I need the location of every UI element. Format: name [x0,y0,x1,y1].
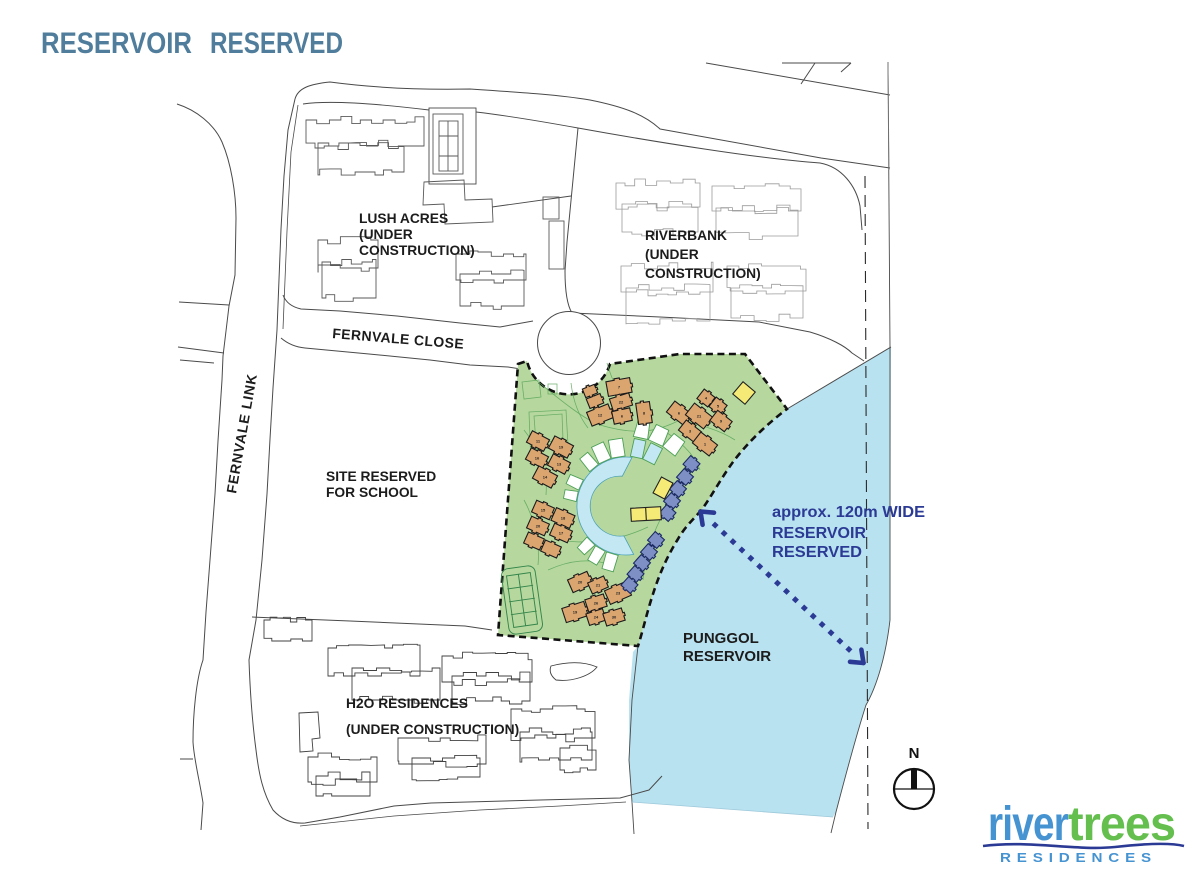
svg-text:river: river [988,798,1068,851]
svg-text:17: 17 [559,531,564,536]
svg-text:20: 20 [536,524,541,529]
svg-text:24: 24 [594,615,599,620]
svg-text:26: 26 [594,601,599,606]
svg-text:FOR SCHOOL: FOR SCHOOL [326,485,418,500]
svg-text:RESERVED: RESERVED [210,27,343,60]
svg-text:19: 19 [573,610,578,615]
svg-text:CONSTRUCTION): CONSTRUCTION) [645,266,761,281]
svg-text:RESERVOIR: RESERVOIR [772,525,866,542]
svg-text:16: 16 [535,456,540,461]
svg-text:30: 30 [612,615,617,620]
svg-text:23: 23 [616,591,621,596]
svg-text:RESERVED: RESERVED [772,544,862,561]
svg-text:22: 22 [619,400,624,405]
svg-text:14: 14 [543,475,548,480]
svg-text:15: 15 [541,508,546,513]
svg-text:12: 12 [598,413,603,418]
svg-text:18: 18 [561,516,566,521]
svg-text:(UNDER CONSTRUCTION): (UNDER CONSTRUCTION) [346,722,519,737]
svg-text:13: 13 [557,462,562,467]
svg-text:PUNGGOL: PUNGGOL [683,630,759,647]
svg-text:RESERVOIR: RESERVOIR [41,27,192,60]
svg-text:20: 20 [578,580,583,585]
svg-text:approx. 120m WIDE: approx. 120m WIDE [772,504,925,521]
svg-text:H2O RESIDENCES: H2O RESIDENCES [346,696,468,711]
svg-text:CONSTRUCTION): CONSTRUCTION) [359,243,475,258]
svg-text:(UNDER: (UNDER [645,247,699,262]
svg-text:RESIDENCES: RESIDENCES [1000,850,1157,865]
svg-text:LUSH ACRES: LUSH ACRES [359,211,448,226]
svg-text:21: 21 [596,583,601,588]
svg-text:RIVERBANK: RIVERBANK [645,228,727,243]
svg-text:21: 21 [697,414,702,419]
svg-text:(UNDER: (UNDER [359,227,413,242]
svg-text:RESERVOIR: RESERVOIR [683,648,771,665]
svg-text:19: 19 [559,445,564,450]
svg-text:SITE RESERVED: SITE RESERVED [326,469,436,484]
svg-text:N: N [909,745,920,762]
